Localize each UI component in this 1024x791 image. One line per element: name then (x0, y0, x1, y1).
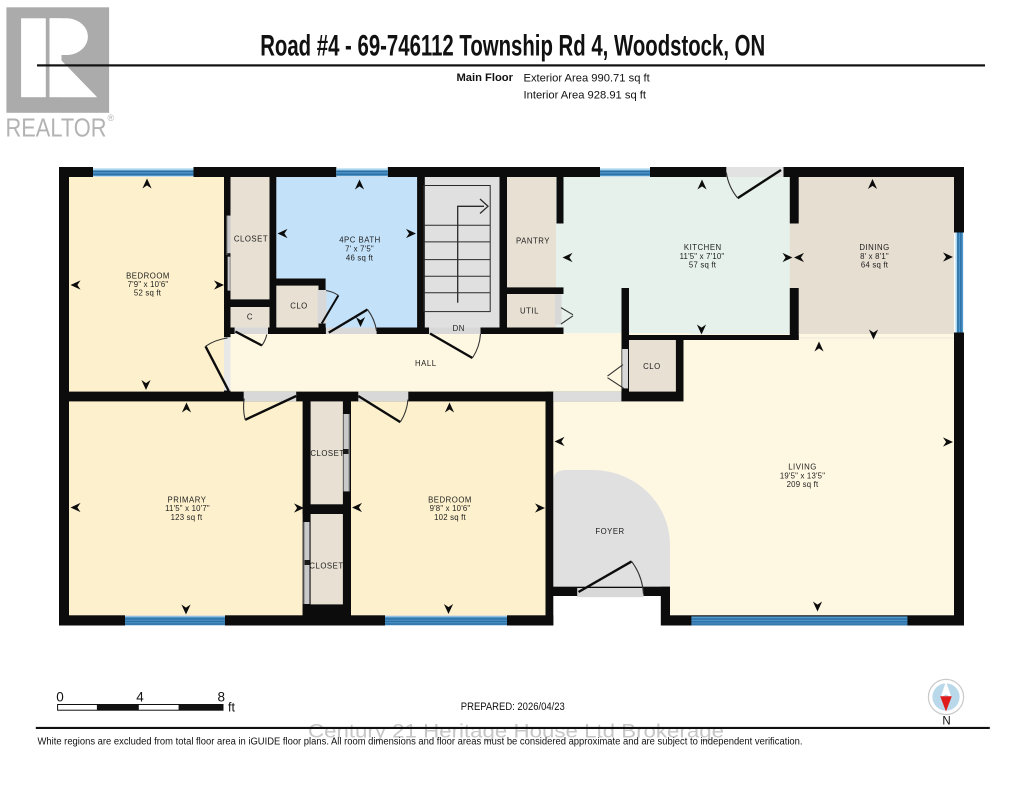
svg-text:Main Floor: Main Floor (456, 72, 513, 84)
svg-text:CLO: CLO (290, 302, 308, 311)
svg-text:Exterior Area 990.71 sq ft: Exterior Area 990.71 sq ft (524, 73, 651, 85)
svg-text:REALTOR: REALTOR (6, 114, 107, 142)
svg-text:ft: ft (228, 701, 235, 715)
svg-text:®: ® (108, 113, 115, 123)
svg-text:209 sq ft: 209 sq ft (787, 480, 819, 489)
svg-text:102 sq ft: 102 sq ft (434, 513, 466, 522)
svg-text:4PC BATH: 4PC BATH (339, 236, 381, 245)
svg-text:UTIL: UTIL (520, 307, 539, 316)
svg-text:N: N (942, 716, 950, 728)
svg-text:KITCHEN: KITCHEN (684, 243, 722, 252)
svg-text:CLOSET: CLOSET (309, 562, 343, 571)
svg-text:C: C (247, 313, 253, 322)
svg-text:HALL: HALL (415, 359, 437, 368)
svg-text:PRIMARY: PRIMARY (168, 496, 207, 505)
svg-text:DINING: DINING (859, 243, 889, 252)
svg-text:CLO: CLO (643, 362, 661, 371)
svg-text:FOYER: FOYER (595, 527, 624, 536)
svg-text:BEDROOM: BEDROOM (126, 272, 170, 281)
svg-text:White regions are excluded fro: White regions are excluded from total fl… (38, 737, 803, 748)
svg-text:0: 0 (56, 690, 64, 705)
svg-text:Interior Area 928.91 sq ft: Interior Area 928.91 sq ft (524, 90, 647, 102)
svg-text:DN: DN (453, 324, 465, 333)
svg-text:52 sq ft: 52 sq ft (134, 289, 162, 298)
svg-text:57 sq ft: 57 sq ft (689, 260, 717, 269)
svg-text:46 sq ft: 46 sq ft (346, 254, 374, 263)
svg-text:7' x 7'5": 7' x 7'5" (345, 245, 374, 254)
svg-text:PANTRY: PANTRY (516, 237, 550, 246)
svg-text:4: 4 (136, 690, 144, 705)
svg-text:Road #4 - 69-746112 Township R: Road #4 - 69-746112 Township Rd 4, Woods… (260, 29, 765, 62)
svg-text:123 sq ft: 123 sq ft (171, 513, 203, 522)
svg-text:BEDROOM: BEDROOM (428, 496, 472, 505)
svg-text:8: 8 (218, 690, 226, 705)
svg-text:LIVING: LIVING (788, 463, 817, 472)
svg-text:CLOSET: CLOSET (310, 449, 344, 458)
svg-text:CLOSET: CLOSET (234, 235, 268, 244)
svg-text:64 sq ft: 64 sq ft (861, 260, 889, 269)
svg-text:19'5" x 13'5": 19'5" x 13'5" (780, 471, 825, 480)
svg-text:PREPARED: 2026/04/23: PREPARED: 2026/04/23 (461, 701, 565, 713)
